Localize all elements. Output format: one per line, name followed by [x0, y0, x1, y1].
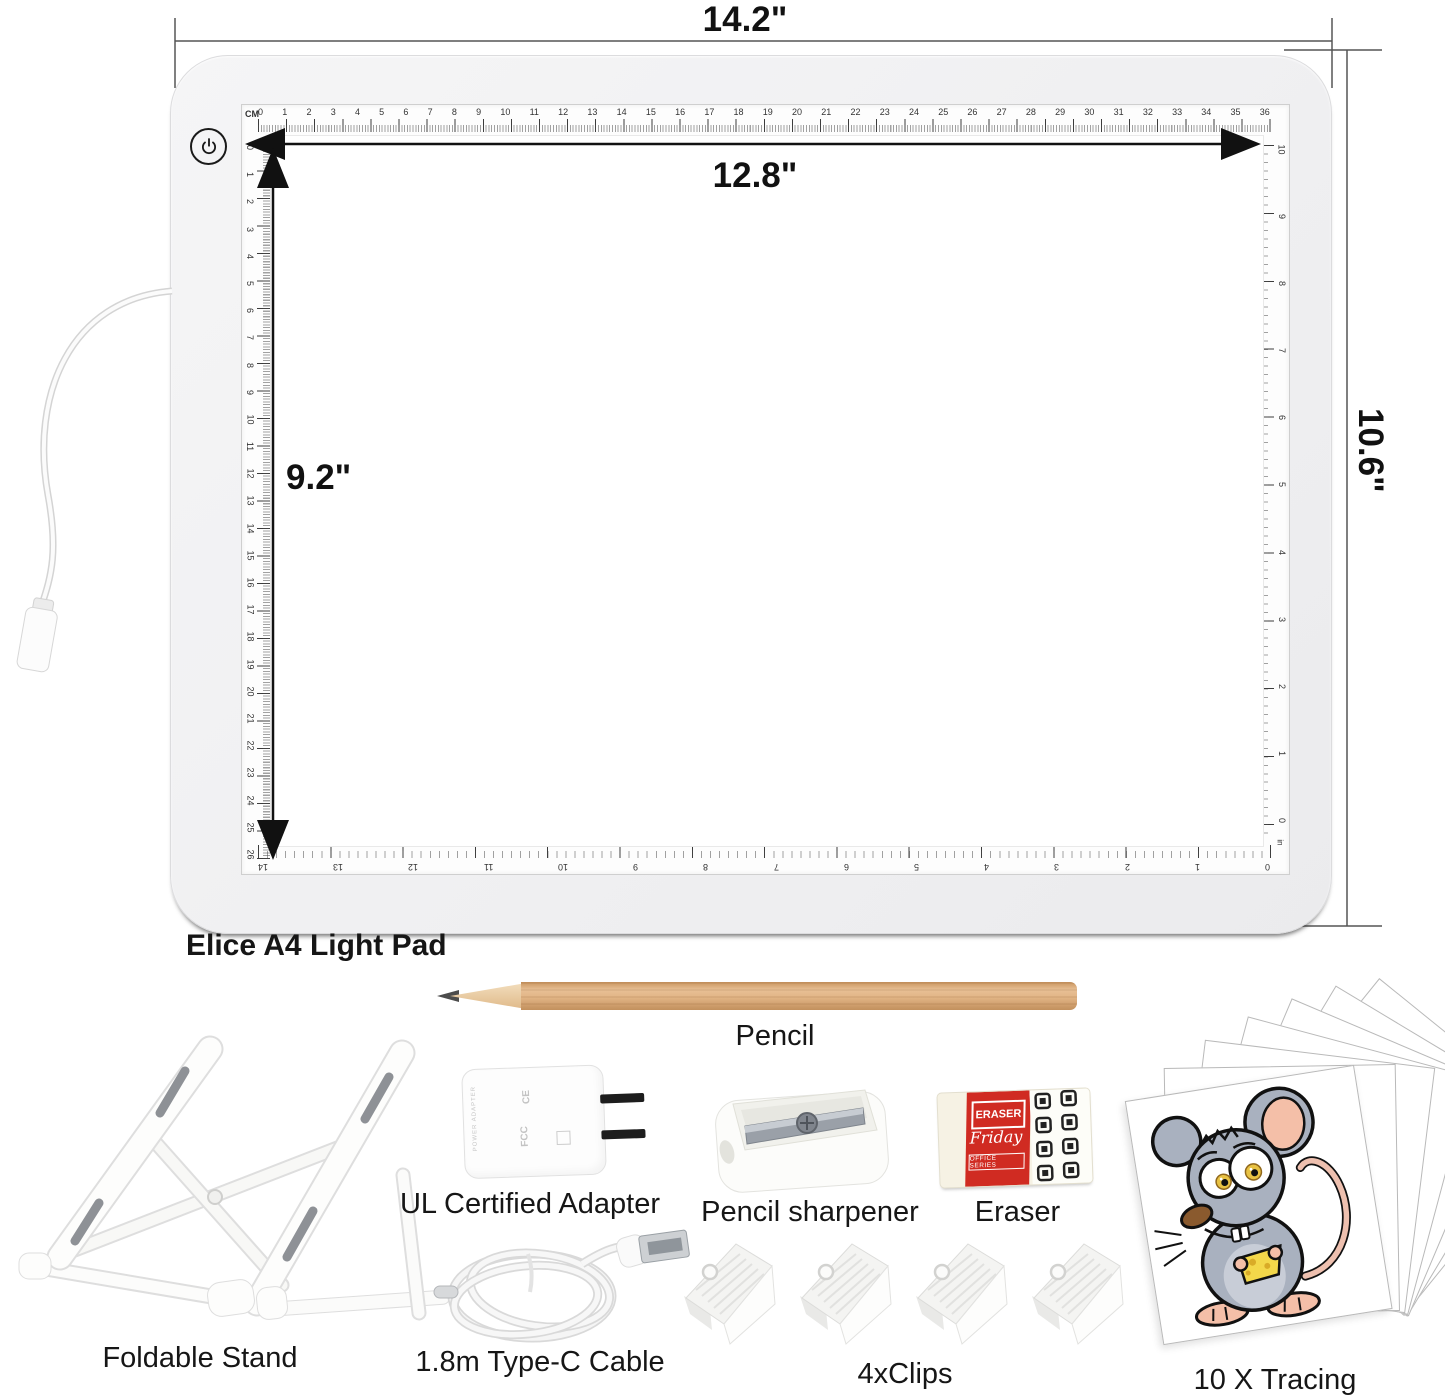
- pencil-wood-cone: [450, 983, 526, 1009]
- inner-height-dimension-label: 9.2": [286, 458, 406, 498]
- pencil-image: [437, 981, 1089, 1011]
- eraser-image: ERASER Friday OFFICE SERIES: [936, 1087, 1093, 1188]
- ruler-unit-label: CM: [245, 109, 259, 119]
- clip: [794, 1238, 894, 1350]
- eraser-brand-script: Friday: [966, 1127, 1026, 1148]
- typec-cable-image: [432, 1232, 697, 1352]
- power-icon: [198, 136, 220, 158]
- adapter-cert-square: [556, 1131, 570, 1145]
- eraser-label: Eraser: [930, 1196, 1105, 1229]
- adapter-label: UL Certified Adapter: [395, 1188, 665, 1221]
- sharpener-image: [715, 1078, 900, 1193]
- adapter-image: POWER ADAPTER CE FCC: [461, 1063, 655, 1182]
- eraser-brand-title: ERASER: [971, 1100, 1025, 1130]
- stand-label: Foldable Stand: [40, 1342, 360, 1375]
- clips-image: [678, 1238, 1126, 1350]
- sharpener-label: Pencil sharpener: [695, 1196, 925, 1229]
- fcc-mark: FCC: [519, 1126, 531, 1147]
- product-name: Elice A4 Light Pad: [186, 929, 586, 963]
- ruler-top-numbers: 0123456789101112131415161718192021222324…: [258, 107, 1270, 119]
- drawing-area: [270, 135, 1264, 847]
- pencil-label: Pencil: [675, 1020, 875, 1053]
- clip: [678, 1238, 778, 1350]
- ruler-bottom-numbers: 14131211109876543210: [258, 860, 1270, 872]
- inner-width-dimension-label: 12.8": [660, 156, 850, 196]
- clip: [910, 1238, 1010, 1350]
- ce-mark: CE: [521, 1090, 532, 1104]
- clips-label: 4xClips: [795, 1358, 1015, 1391]
- foldable-stand-image: [25, 1045, 455, 1345]
- ruler-bottom-minor-ticks: [258, 851, 1271, 858]
- inner-height-dimension-arrow: [254, 146, 294, 862]
- pencil-body: [521, 982, 1077, 1010]
- eraser-brand-series: OFFICE SERIES: [968, 1153, 1024, 1171]
- cable-label: 1.8m Type-C Cable: [415, 1346, 665, 1379]
- tracing-paper-front: [1125, 1065, 1393, 1345]
- product-infographic: 14.2" 10.6" CM 0123456789101112131415161…: [0, 0, 1445, 1400]
- cable-connector: [16, 596, 60, 672]
- mouse-cartoon: [1126, 1066, 1391, 1344]
- power-cable: [0, 275, 185, 695]
- ruler-right-numbers: 109876543210: [1275, 145, 1288, 825]
- papers-label: 10 X Tracing Papers: [1145, 1364, 1405, 1400]
- adapter-prong-top: [600, 1093, 644, 1104]
- adapter-body: POWER ADAPTER CE FCC: [461, 1064, 607, 1179]
- power-button: [190, 128, 227, 165]
- adapter-side-print: POWER ADAPTER: [471, 1086, 479, 1152]
- clip: [1026, 1238, 1126, 1350]
- adapter-prong-bottom: [601, 1129, 645, 1140]
- eraser-red-band: ERASER Friday OFFICE SERIES: [965, 1090, 1031, 1186]
- ruler-right-unit-label: in: [1276, 839, 1285, 845]
- eraser-pattern: [1029, 1088, 1092, 1184]
